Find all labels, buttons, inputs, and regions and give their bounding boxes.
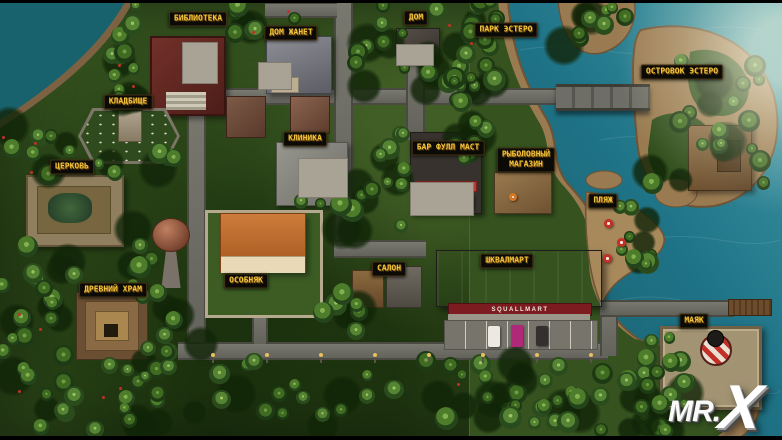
- labels-layer: БИБЛИОТЕКАДОМ ЖАНЕТДОМПАРК ЭСТЕРООСТРОВО…: [0, 0, 782, 440]
- map-label-fishing-shop[interactable]: РЫБОЛОВНЫЙ МАГАЗИН: [497, 148, 555, 173]
- map-label-house[interactable]: ДОМ: [404, 11, 428, 26]
- letterbox-bottom: [0, 436, 782, 440]
- map-label-library[interactable]: БИБЛИОТЕКА: [169, 12, 227, 27]
- game-map: SQUALLMART БИБЛИОТЕКАДОМ ЖАНЕТДОМПАРК ЭС…: [0, 0, 782, 440]
- map-label-park-estero[interactable]: ПАРК ЭСТЕРО: [475, 23, 538, 38]
- letterbox-top: [0, 0, 782, 3]
- map-label-lighthouse[interactable]: МАЯК: [679, 314, 708, 329]
- mrx-logo: MR. X: [668, 368, 780, 432]
- map-label-ancient-temple[interactable]: ДРЕВНИЙ ХРАМ: [79, 283, 147, 298]
- map-label-beach[interactable]: ПЛЯЖ: [588, 194, 617, 209]
- map-label-bar-full-mast[interactable]: БАР ФУЛЛ МАСТ: [412, 141, 485, 156]
- map-label-janet-house[interactable]: ДОМ ЖАНЕТ: [264, 26, 317, 41]
- mrx-logo-x: X: [717, 384, 765, 432]
- map-label-clinic[interactable]: КЛИНИКА: [283, 132, 327, 147]
- map-label-squallmart[interactable]: ШКВАЛМАРТ: [480, 254, 533, 269]
- map-label-mansion[interactable]: ОСОБНЯК: [224, 274, 268, 289]
- mrx-logo-mr: MR.: [668, 400, 720, 424]
- map-label-islet-estero[interactable]: ОСТРОВОК ЭСТЕРО: [641, 65, 723, 80]
- map-label-cemetery[interactable]: КЛАДБИЩЕ: [104, 95, 153, 110]
- map-label-salon[interactable]: САЛОН: [372, 262, 406, 277]
- map-label-church[interactable]: ЦЕРКОВЬ: [50, 160, 94, 175]
